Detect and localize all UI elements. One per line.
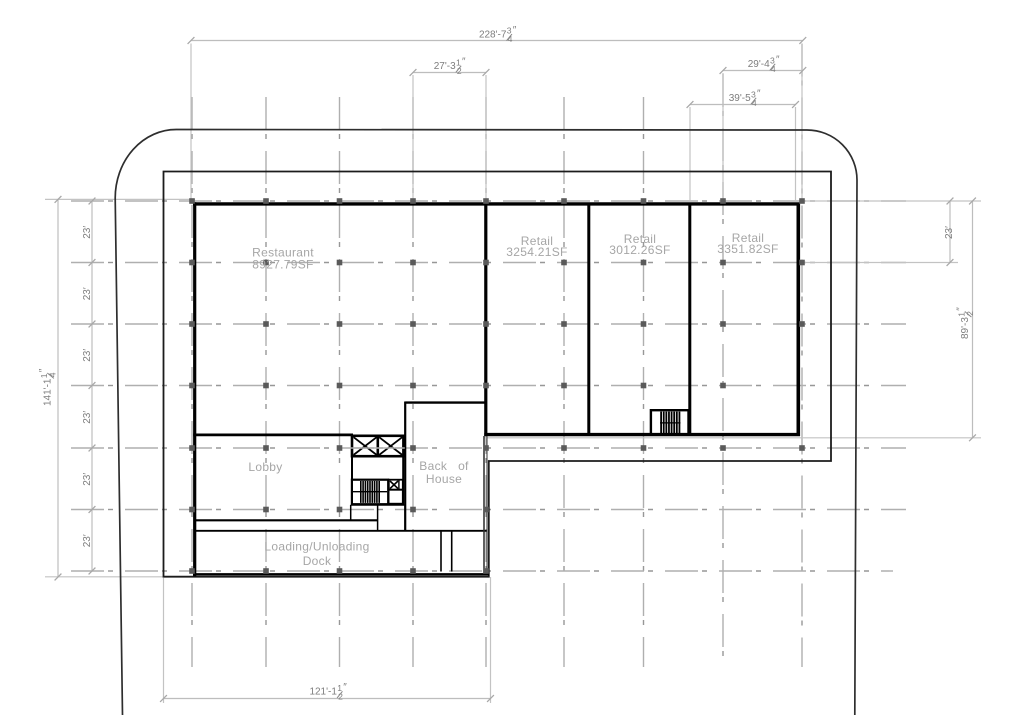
svg-text:Back ofHouse: Back ofHouse	[419, 459, 469, 486]
svg-text:141'-1: 141'-1	[43, 378, 54, 406]
svg-text:23′: 23′	[82, 534, 93, 547]
svg-text:23′: 23′	[82, 411, 93, 424]
svg-text:121'-1: 121'-1	[309, 687, 337, 698]
svg-text:228'-7: 228'-7	[479, 29, 507, 40]
svg-text:27'-3: 27'-3	[434, 61, 456, 72]
svg-text:29'-4: 29'-4	[748, 59, 770, 70]
svg-text:23′: 23′	[82, 473, 93, 486]
svg-text:″: ″	[343, 682, 347, 693]
svg-text:89'-3: 89'-3	[960, 317, 971, 339]
svg-text:″: ″	[38, 368, 49, 372]
svg-text:″: ″	[513, 25, 517, 36]
svg-text:23′: 23′	[82, 226, 93, 239]
svg-text:Restaurant8927.79SF: Restaurant8927.79SF	[252, 246, 314, 272]
svg-text:″: ″	[462, 57, 466, 68]
svg-text:39'-5: 39'-5	[729, 93, 751, 104]
svg-text:23′: 23′	[82, 287, 93, 300]
svg-text:″: ″	[776, 55, 780, 66]
svg-text:23′: 23′	[944, 226, 955, 239]
svg-text:Lobby: Lobby	[248, 460, 282, 474]
svg-text:″: ″	[757, 89, 761, 100]
svg-text:″: ″	[956, 307, 967, 311]
svg-text:23′: 23′	[82, 349, 93, 362]
